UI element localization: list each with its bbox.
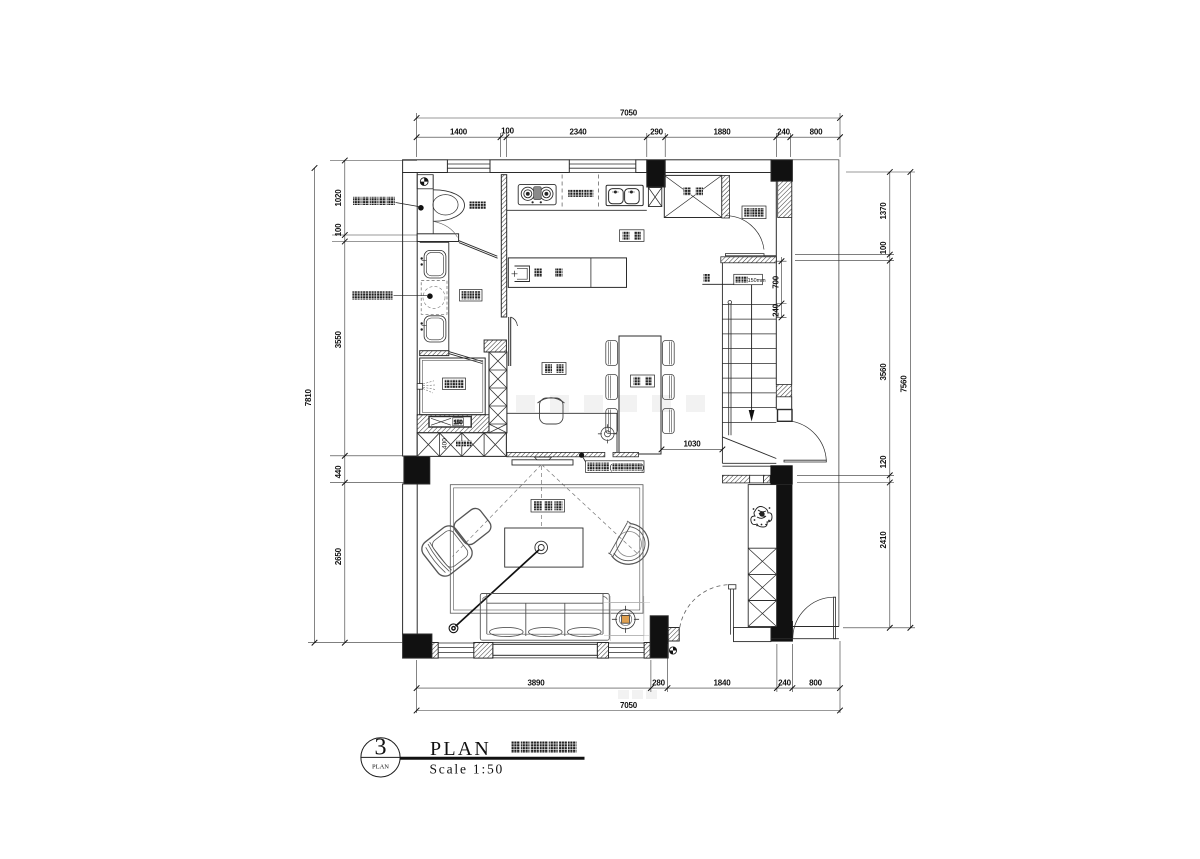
svg-text:2410: 2410	[879, 531, 888, 549]
svg-text:150: 150	[454, 420, 463, 426]
svg-text:120: 120	[879, 455, 888, 468]
svg-text:7810: 7810	[304, 389, 313, 407]
svg-text:7050: 7050	[620, 701, 638, 710]
svg-text:1020: 1020	[334, 189, 343, 207]
svg-text:100: 100	[879, 241, 888, 254]
svg-text:240: 240	[772, 303, 781, 316]
svg-text:2340: 2340	[570, 128, 588, 137]
svg-text:100: 100	[501, 127, 514, 136]
svg-text:700: 700	[772, 275, 781, 288]
svg-text:290: 290	[650, 128, 663, 137]
svg-text:1370: 1370	[879, 202, 888, 220]
svg-text:Scale 1:50: Scale 1:50	[430, 762, 505, 777]
svg-text:150mm: 150mm	[748, 278, 766, 284]
svg-text:1030: 1030	[684, 440, 702, 449]
svg-text:1840: 1840	[714, 678, 732, 687]
svg-text:240: 240	[777, 128, 790, 137]
svg-text:240: 240	[778, 678, 791, 687]
svg-text:440: 440	[334, 465, 343, 478]
svg-text:(: (	[610, 463, 613, 472]
svg-text:PLAN: PLAN	[430, 738, 491, 760]
svg-text:280: 280	[652, 678, 665, 687]
svg-text:3550: 3550	[334, 330, 343, 348]
svg-text:3560: 3560	[879, 363, 888, 381]
svg-text:1880: 1880	[714, 128, 732, 137]
svg-text:7560: 7560	[900, 375, 909, 393]
svg-text:1400: 1400	[450, 128, 468, 137]
svg-text:7050: 7050	[620, 109, 638, 118]
svg-text:): )	[642, 463, 645, 472]
svg-text:100: 100	[334, 223, 343, 236]
svg-text:400: 400	[442, 438, 449, 449]
svg-text:2650: 2650	[334, 547, 343, 565]
svg-text:800: 800	[810, 128, 823, 137]
svg-text:3890: 3890	[528, 678, 546, 687]
svg-text:PLAN: PLAN	[372, 764, 389, 771]
svg-text:3: 3	[375, 735, 387, 761]
svg-text:800: 800	[809, 678, 822, 687]
